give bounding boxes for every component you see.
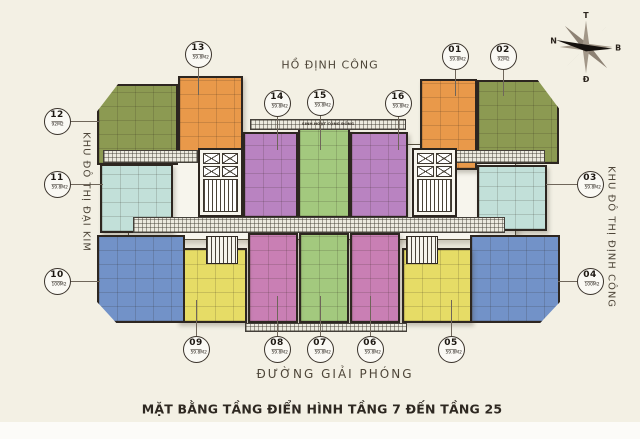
compass-label-b: B [615, 44, 621, 53]
compass-rose-icon: T B Đ N [546, 10, 626, 84]
stairs-icon [203, 179, 238, 212]
left-core [198, 148, 243, 217]
unit-callout-01: 0159.8M2 [442, 43, 469, 70]
unit-area: 59.8M2 [585, 184, 596, 190]
unit-block-04 [470, 235, 560, 323]
elevator-icon [222, 166, 239, 177]
unit-callout-11: 1159.8M2 [44, 171, 71, 198]
compass-label-n: N [550, 36, 557, 45]
unit-leader-04 [558, 281, 577, 282]
unit-number: 12 [50, 111, 64, 120]
elevator-icon [417, 153, 434, 164]
unit-area: 59.8M2 [450, 56, 461, 62]
unit-area: 59.8M2 [315, 349, 326, 355]
elevator-bank [203, 153, 238, 177]
unit-area: 59.8M2 [365, 349, 376, 355]
unit-area: 59.8M2 [272, 349, 283, 355]
unit-callout-02: 0292M2 [490, 43, 517, 70]
unit-number: 11 [50, 174, 64, 183]
unit-callout-16: 1659.8M2 [385, 90, 412, 117]
unit-callout-03: 0359.8M2 [577, 171, 604, 198]
unit-leader-12 [70, 121, 100, 122]
community-room-label: SINH HOẠT CỘNG ĐỒNG [302, 122, 354, 126]
unit-block-15 [298, 128, 350, 218]
elevator-icon [417, 166, 434, 177]
unit-leader-15 [320, 115, 321, 150]
unit-number: 10 [50, 271, 64, 280]
unit-leader-02 [503, 69, 504, 96]
right-core [412, 148, 457, 217]
bottom-canopy [245, 323, 407, 332]
unit-area: 59.8M2 [446, 349, 457, 355]
unit-area: 59.8M2 [191, 349, 202, 355]
unit-number: 14 [270, 93, 284, 102]
label-south-road: ĐƯỜNG GIẢI PHÓNG [256, 367, 413, 381]
elevator-icon [436, 166, 453, 177]
unit-leader-10 [70, 281, 100, 282]
unit-area: 59.8M2 [193, 54, 204, 60]
right-corridor-arm [447, 150, 545, 163]
unit-number: 09 [189, 339, 203, 348]
unit-number: 16 [391, 93, 405, 102]
compass-label-t: T [583, 11, 589, 20]
stairs-icon [417, 179, 452, 212]
unit-number: 06 [363, 339, 377, 348]
unit-area: 59.8M2 [315, 102, 326, 108]
unit-area: 92M2 [52, 121, 63, 127]
main-corridor [133, 217, 505, 233]
unit-block-08 [248, 233, 298, 323]
unit-number: 15 [313, 92, 327, 101]
unit-block-06 [350, 233, 400, 323]
stairs-icon [406, 236, 438, 264]
unit-block-14 [243, 132, 298, 218]
unit-leader-14 [277, 116, 278, 150]
unit-number: 03 [583, 174, 597, 183]
unit-area: 100M2 [52, 281, 63, 287]
unit-callout-07: 0759.8M2 [307, 336, 334, 363]
unit-area: 92M2 [498, 56, 509, 62]
unit-area: 59.8M2 [393, 103, 404, 109]
unit-number: 01 [448, 46, 462, 55]
label-north-area: HỒ ĐỊNH CÔNG [281, 59, 378, 72]
unit-callout-15: 1559.8M2 [307, 89, 334, 116]
unit-leader-09 [196, 300, 197, 336]
unit-block-13 [178, 76, 243, 153]
unit-callout-12: 1292M2 [44, 108, 71, 135]
label-east-area: KHU ĐÔ THỊ ĐỊNH CÔNG [606, 166, 617, 308]
unit-area: 59.8M2 [272, 103, 283, 109]
unit-callout-10: 10100M2 [44, 268, 71, 295]
unit-leader-08 [277, 296, 278, 336]
unit-number: 07 [313, 339, 327, 348]
unit-number: 08 [270, 339, 284, 348]
elevator-bank [417, 153, 452, 177]
left-corridor-arm [103, 150, 198, 163]
elevator-icon [203, 166, 220, 177]
unit-block-16 [350, 132, 408, 218]
unit-leader-05 [451, 300, 452, 336]
unit-block-10 [97, 235, 185, 323]
unit-callout-14: 1459.8M2 [264, 90, 291, 117]
unit-leader-01 [455, 69, 456, 96]
compass-label-d: Đ [583, 75, 590, 84]
unit-number: 04 [583, 271, 597, 280]
elevator-icon [436, 153, 453, 164]
unit-callout-05: 0559.8M2 [438, 336, 465, 363]
elevator-icon [222, 153, 239, 164]
label-west-area: KHU ĐÔ THỊ ĐẠI KIM [81, 132, 92, 252]
elevator-icon [203, 153, 220, 164]
unit-callout-06: 0659.8M2 [357, 336, 384, 363]
stairs-icon [206, 236, 238, 264]
page-title: MẶT BẰNG TẦNG ĐIỂN HÌNH TẦNG 7 ĐẾN TẦNG … [142, 402, 503, 417]
unit-callout-04: 04100M2 [577, 268, 604, 295]
bottom-divider [0, 422, 640, 439]
unit-leader-16 [398, 116, 399, 150]
unit-area: 100M2 [585, 281, 596, 287]
unit-number: 05 [444, 339, 458, 348]
floorplan-page: HỒ ĐỊNH CÔNG KHU ĐÔ THỊ ĐẠI KIM KHU ĐÔ T… [0, 0, 640, 439]
unit-callout-09: 0959.8M2 [183, 336, 210, 363]
unit-leader-03 [546, 184, 577, 185]
unit-block-07 [299, 233, 349, 323]
unit-callout-13: 1359.8M2 [185, 41, 212, 68]
unit-leader-13 [198, 67, 199, 95]
unit-area: 59.8M2 [52, 184, 63, 190]
unit-number: 13 [191, 44, 205, 53]
unit-leader-06 [370, 296, 371, 336]
unit-callout-08: 0859.8M2 [264, 336, 291, 363]
unit-number: 02 [496, 46, 510, 55]
unit-leader-07 [320, 296, 321, 336]
